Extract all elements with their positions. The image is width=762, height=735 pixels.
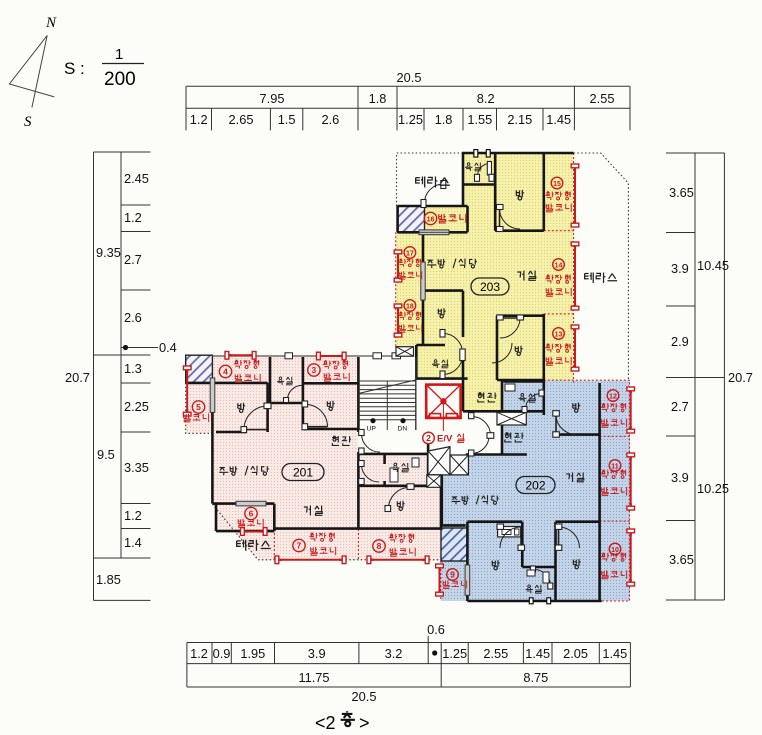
svg-text:2.15: 2.15 — [507, 112, 532, 127]
svg-text:14: 14 — [555, 263, 563, 270]
svg-text:2.45: 2.45 — [124, 171, 149, 186]
svg-text:5: 5 — [196, 402, 201, 412]
svg-text:E/V: E/V — [437, 434, 453, 445]
svg-text:2.9: 2.9 — [671, 334, 689, 349]
svg-text:0.6: 0.6 — [427, 622, 445, 637]
svg-text:N: N — [45, 15, 57, 31]
svg-text:9: 9 — [450, 570, 455, 580]
svg-text:9.5: 9.5 — [97, 447, 115, 462]
svg-text:200: 200 — [104, 69, 136, 90]
svg-text:17: 17 — [406, 251, 414, 258]
svg-text:2.55: 2.55 — [590, 91, 615, 106]
svg-text:11.75: 11.75 — [298, 670, 329, 685]
svg-text:7: 7 — [297, 541, 302, 551]
svg-text:1.55: 1.55 — [467, 112, 492, 127]
svg-text:1.8: 1.8 — [435, 112, 453, 127]
svg-text:0.4: 0.4 — [159, 340, 177, 355]
svg-text:2: 2 — [426, 433, 431, 443]
svg-text:11: 11 — [611, 464, 619, 471]
svg-text:1.25: 1.25 — [442, 646, 467, 661]
svg-text:3: 3 — [312, 365, 317, 375]
svg-text:20.5: 20.5 — [397, 70, 422, 85]
svg-text:1.8: 1.8 — [369, 91, 387, 106]
svg-text:1.2: 1.2 — [190, 646, 208, 661]
svg-text:1.2: 1.2 — [190, 112, 208, 127]
svg-text:10.25: 10.25 — [697, 481, 729, 496]
svg-text:2.6: 2.6 — [322, 112, 340, 127]
svg-text:1.45: 1.45 — [546, 112, 571, 127]
svg-text:7.95: 7.95 — [260, 91, 285, 106]
svg-text:<2: <2 — [315, 713, 336, 733]
svg-text:1.3: 1.3 — [124, 361, 142, 376]
svg-text:2.7: 2.7 — [671, 399, 689, 414]
svg-text:1.85: 1.85 — [96, 572, 121, 587]
svg-text:3.65: 3.65 — [669, 552, 694, 567]
svg-text:20.7: 20.7 — [65, 370, 90, 385]
svg-text:2.7: 2.7 — [124, 252, 142, 267]
svg-text:3.9: 3.9 — [308, 646, 326, 661]
svg-text:203: 203 — [480, 280, 500, 294]
svg-text:9.35: 9.35 — [96, 245, 121, 260]
svg-text:2.6: 2.6 — [124, 310, 142, 325]
svg-text:1.2: 1.2 — [124, 508, 142, 523]
svg-text:3.9: 3.9 — [671, 470, 689, 485]
svg-text:>: > — [359, 713, 370, 733]
svg-text:3.65: 3.65 — [669, 185, 694, 200]
svg-text:2.55: 2.55 — [483, 646, 508, 661]
svg-text:1.25: 1.25 — [398, 112, 423, 127]
svg-text:10.45: 10.45 — [697, 258, 729, 273]
svg-text:S :: S : — [64, 59, 85, 78]
svg-text:8.2: 8.2 — [477, 91, 495, 106]
svg-text:4: 4 — [223, 367, 228, 377]
svg-text:1.2: 1.2 — [124, 210, 142, 225]
svg-text:18: 18 — [406, 304, 414, 311]
svg-text:1.95: 1.95 — [240, 646, 265, 661]
svg-text:16: 16 — [427, 217, 435, 224]
svg-text:15: 15 — [553, 181, 561, 188]
svg-text:20.5: 20.5 — [352, 689, 377, 704]
svg-text:6: 6 — [249, 509, 254, 519]
svg-text:3.35: 3.35 — [124, 460, 149, 475]
svg-text:1.5: 1.5 — [278, 112, 296, 127]
svg-text:2.65: 2.65 — [229, 112, 254, 127]
svg-text:1.45: 1.45 — [525, 646, 550, 661]
svg-text:2.05: 2.05 — [563, 646, 588, 661]
svg-text:10: 10 — [611, 547, 619, 554]
svg-text:8: 8 — [377, 541, 382, 551]
svg-text:DN: DN — [398, 426, 408, 433]
svg-text:12: 12 — [609, 394, 617, 401]
svg-text:13: 13 — [555, 332, 563, 339]
svg-text:3.9: 3.9 — [671, 261, 689, 276]
svg-text:201: 201 — [293, 466, 313, 480]
svg-text:1.45: 1.45 — [602, 646, 627, 661]
svg-text:20.7: 20.7 — [728, 370, 753, 385]
svg-text:UP: UP — [367, 426, 377, 433]
svg-text:S: S — [24, 114, 32, 130]
svg-text:3.2: 3.2 — [385, 646, 403, 661]
svg-text:0.9: 0.9 — [213, 646, 231, 661]
svg-text:8.75: 8.75 — [523, 670, 548, 685]
svg-text:1: 1 — [115, 46, 123, 63]
svg-text:202: 202 — [525, 479, 545, 493]
svg-text:1.4: 1.4 — [124, 535, 142, 550]
svg-text:2.25: 2.25 — [124, 399, 149, 414]
